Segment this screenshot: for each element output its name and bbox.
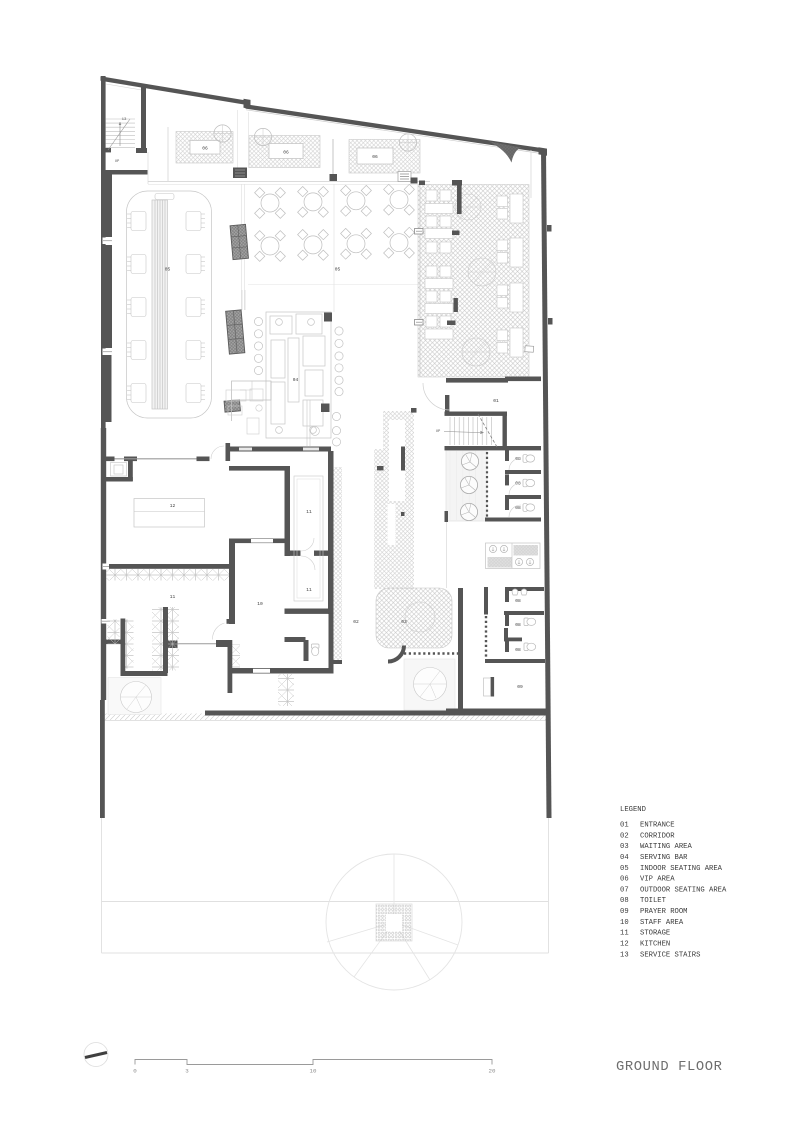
svg-text:STORAGE: STORAGE: [640, 930, 670, 938]
svg-text:10: 10: [310, 1068, 317, 1075]
svg-text:05: 05: [335, 267, 341, 273]
svg-text:01: 01: [620, 822, 629, 830]
svg-text:STAFF AREA: STAFF AREA: [640, 919, 684, 927]
svg-text:KITCHEN: KITCHEN: [640, 941, 670, 949]
svg-text:11: 11: [170, 594, 176, 600]
svg-text:VIP AREA: VIP AREA: [640, 876, 675, 884]
svg-text:08: 08: [515, 622, 521, 628]
svg-text:11: 11: [620, 930, 629, 938]
svg-text:08: 08: [515, 647, 521, 653]
svg-text:10: 10: [257, 601, 263, 607]
svg-text:06: 06: [372, 154, 378, 160]
svg-text:06: 06: [283, 150, 289, 156]
svg-text:OUTDOOR SEATING AREA: OUTDOOR SEATING AREA: [640, 886, 727, 894]
svg-text:0: 0: [133, 1068, 137, 1075]
svg-text:10: 10: [620, 919, 629, 927]
svg-text:UP: UP: [436, 430, 441, 434]
svg-text:12: 12: [620, 941, 629, 949]
svg-text:09: 09: [517, 684, 523, 690]
svg-text:SERVING BAR: SERVING BAR: [640, 854, 688, 862]
svg-text:08: 08: [620, 897, 629, 905]
svg-text:02: 02: [620, 832, 629, 840]
svg-text:01: 01: [493, 398, 499, 404]
svg-text:04: 04: [620, 854, 629, 862]
svg-text:02: 02: [353, 619, 359, 625]
svg-text:CORRIDOR: CORRIDOR: [640, 832, 675, 840]
svg-text:PRAYER ROOM: PRAYER ROOM: [640, 908, 687, 916]
svg-text:09: 09: [620, 908, 629, 916]
svg-text:TOILET: TOILET: [640, 897, 667, 905]
svg-text:12: 12: [170, 503, 176, 509]
svg-text:WAITING AREA: WAITING AREA: [640, 843, 692, 851]
svg-text:11: 11: [306, 587, 312, 593]
svg-text:13: 13: [122, 118, 127, 122]
svg-text:20: 20: [489, 1068, 496, 1075]
svg-text:03: 03: [401, 619, 407, 625]
svg-text:03: 03: [620, 843, 629, 851]
svg-text:13: 13: [620, 951, 629, 959]
svg-text:11: 11: [306, 509, 312, 515]
svg-text:07: 07: [620, 886, 629, 894]
svg-text:05: 05: [165, 267, 171, 273]
svg-text:06: 06: [202, 146, 208, 152]
svg-text:04: 04: [293, 377, 299, 383]
svg-text:GROUND FLOOR: GROUND FLOOR: [616, 1060, 723, 1075]
svg-text:SERVICE STAIRS: SERVICE STAIRS: [640, 951, 700, 959]
svg-text:LEGEND: LEGEND: [620, 806, 646, 814]
svg-text:ENTRANCE: ENTRANCE: [640, 822, 675, 830]
svg-text:08: 08: [515, 598, 521, 604]
svg-text:06: 06: [620, 876, 629, 884]
svg-text:INDOOR SEATING AREA: INDOOR SEATING AREA: [640, 865, 723, 873]
svg-text:UP: UP: [115, 160, 120, 164]
svg-text:05: 05: [620, 865, 629, 873]
svg-text:3: 3: [185, 1068, 189, 1075]
